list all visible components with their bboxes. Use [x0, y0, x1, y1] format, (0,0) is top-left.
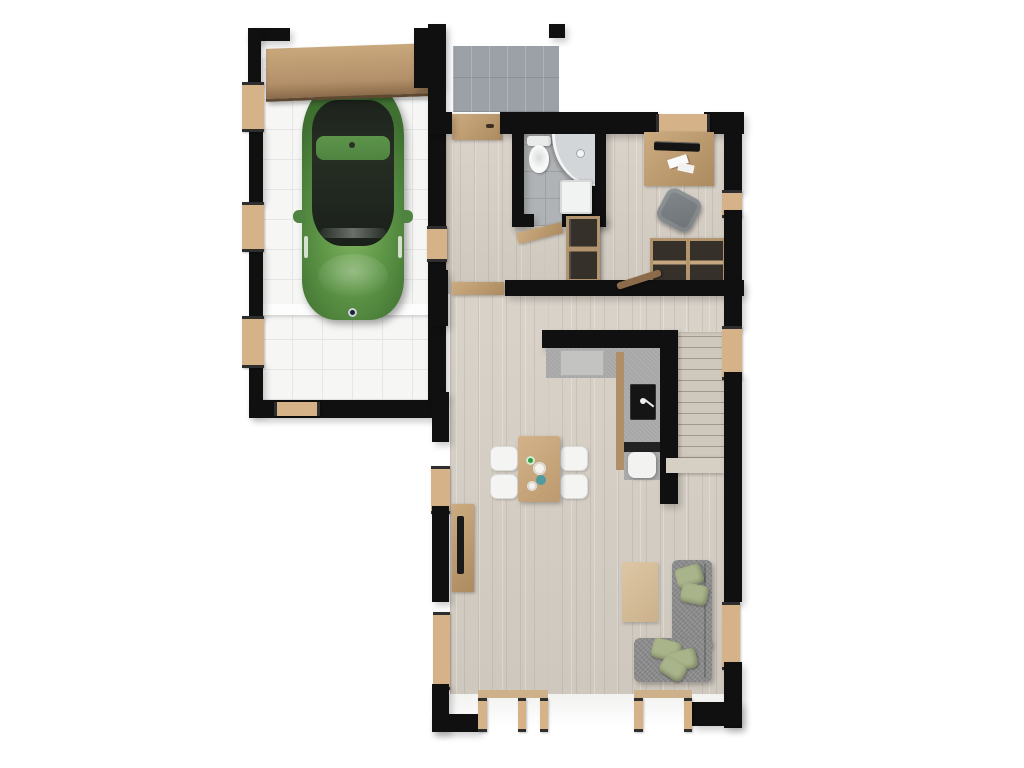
sink-faucet-arm: [644, 399, 655, 408]
porch-floor: [453, 46, 559, 112]
hall-cabinet: [566, 216, 600, 282]
wall-kitchen-stairs: [660, 330, 678, 504]
dining-chair-2: [490, 474, 518, 499]
patio-sill-left: [478, 690, 548, 698]
wall-corner-br-h: [692, 702, 742, 726]
tableware-white-bowl: [533, 462, 546, 475]
dining-chair-4: [560, 474, 588, 499]
front-door: [452, 114, 502, 140]
car-mirror-left: [293, 210, 305, 223]
wall-divider-left-stub: [430, 270, 448, 326]
wall-garage-left-1: [249, 126, 263, 202]
wall-entry-jamb: [444, 112, 452, 134]
front-door-handle: [486, 124, 494, 128]
dining-chair-3: [560, 446, 588, 471]
dining-table: [518, 436, 560, 502]
car-hood-shine: [318, 254, 388, 298]
car-roof-panel: [316, 136, 390, 160]
wall-top-right: [704, 112, 744, 134]
shelving-unit: [650, 238, 726, 286]
patio-post-2: [518, 698, 526, 732]
wall-porch-stub: [549, 24, 565, 38]
car-door-glint-right: [398, 236, 402, 258]
wall-bath-bottom-l: [512, 214, 534, 227]
tableware-teal-cup: [536, 475, 546, 485]
garage-bottom-window: [274, 402, 320, 416]
patio-sill-right: [634, 690, 692, 698]
washing-machine: [560, 180, 592, 214]
stairs: [678, 332, 724, 458]
car-antenna-dot: [349, 142, 355, 148]
wall-garage-topleft-v: [248, 28, 261, 86]
living-window-right: [722, 602, 740, 670]
shower-head-dot: [577, 150, 584, 157]
desk-monitor: [654, 141, 700, 152]
garage-window-3: [242, 316, 264, 368]
dining-chair-1: [490, 446, 518, 471]
tv-screen: [457, 516, 464, 574]
kitchen-wood-strip: [616, 352, 624, 470]
wall-kitchen-top: [542, 330, 678, 348]
sofa-armrest-line: [704, 564, 706, 678]
wall-corner-bl-h: [432, 714, 480, 732]
wall-bath-left: [512, 126, 524, 226]
stairs-landing: [666, 458, 724, 473]
car: [302, 78, 404, 320]
tableware-white-cup: [527, 481, 537, 491]
living-window-left-2: [433, 612, 450, 690]
garage-window-2: [242, 202, 264, 252]
hall-side-window: [427, 226, 447, 262]
patio-post-1: [478, 698, 487, 732]
kitchen-sink: [630, 384, 656, 420]
car-glass-canopy: [312, 100, 394, 246]
toilet: [526, 136, 552, 176]
car-mirror-right: [401, 210, 413, 223]
hall-living-door: [452, 282, 504, 295]
patio-post-4: [634, 698, 643, 732]
wall-office-right-1: [724, 134, 742, 192]
kitchen-lower-strip: [624, 442, 660, 452]
car-windshield-glare: [320, 228, 386, 238]
toilet-bowl: [529, 145, 549, 173]
office-window-top: [656, 114, 710, 134]
wall-left-2: [432, 506, 449, 602]
wall-right-1: [724, 292, 742, 328]
patio-post-3: [540, 698, 548, 732]
car-badge: [348, 308, 357, 317]
garage-window-1: [242, 82, 264, 132]
car-door-glint-left: [304, 236, 308, 258]
wall-right-2: [724, 372, 742, 602]
wall-garage-right: [428, 134, 446, 400]
wall-garage-left-2: [249, 246, 263, 316]
floor-plan: [0, 0, 1024, 768]
patio-post-5: [684, 698, 692, 732]
garage-door-panel: [266, 43, 428, 102]
wall-left-1: [432, 392, 449, 442]
kitchen-appliance: [628, 452, 656, 478]
kitchen-cooktop: [560, 350, 604, 376]
coffee-table: [622, 562, 658, 622]
